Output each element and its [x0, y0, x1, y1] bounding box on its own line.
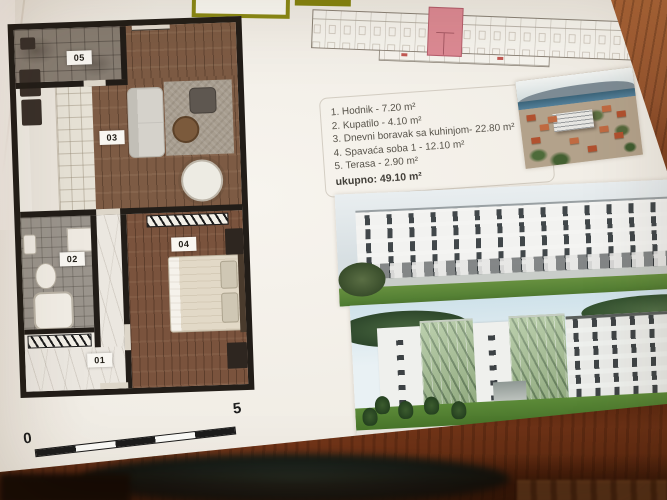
house-roof — [532, 137, 542, 144]
room-label-05: 05 — [67, 50, 92, 65]
bathtub — [33, 291, 74, 330]
apartment-floor-plan: 05 03 02 04 01 — [8, 16, 255, 398]
scale-label-start: 0 — [22, 430, 32, 448]
tree — [362, 408, 378, 427]
wardrobe-hatch — [27, 333, 91, 348]
tree — [398, 400, 414, 419]
dark-fabric-shadow — [80, 454, 510, 500]
kitchen-sink — [20, 37, 35, 50]
room-label-02: 02 — [60, 252, 85, 267]
scale-label-end: 5 — [232, 400, 242, 418]
house-roof — [548, 115, 558, 122]
dark-corner — [0, 474, 130, 500]
house-roof — [539, 124, 549, 131]
tree — [424, 396, 440, 415]
red-mark — [401, 53, 407, 56]
house-roof — [587, 145, 597, 152]
room-label-03: 03 — [99, 130, 124, 145]
building-wing — [565, 310, 667, 398]
pillow — [221, 292, 239, 323]
house-roof — [616, 111, 626, 118]
entrance-door — [100, 382, 128, 389]
neighborhood-aerial-photo — [515, 67, 643, 169]
building-rendering-front — [335, 179, 667, 306]
washing-machine — [67, 227, 94, 252]
fridge — [21, 99, 42, 126]
house-roof — [599, 125, 609, 132]
house-roof — [570, 138, 580, 145]
building-outline — [312, 10, 633, 60]
toilet — [35, 263, 57, 290]
nightstand — [225, 228, 244, 255]
house-roof — [601, 105, 611, 112]
armchair — [189, 87, 217, 114]
pillow — [220, 260, 238, 289]
nightstand — [227, 342, 248, 369]
window-column — [396, 334, 407, 405]
kitchen-floor — [56, 80, 97, 212]
tree — [450, 400, 466, 419]
highlighted-unit — [427, 7, 463, 56]
floor-strip — [517, 480, 667, 500]
bathroom-sink — [23, 234, 37, 254]
building-level-plan — [309, 0, 643, 78]
room-label-04: 04 — [171, 237, 196, 252]
room-label-01: 01 — [87, 353, 112, 368]
door-opening — [96, 208, 120, 215]
terrace-window — [84, 80, 106, 87]
bedroom-door — [124, 324, 131, 350]
house-roof — [614, 132, 624, 139]
house-roof — [526, 114, 536, 121]
red-mark — [497, 57, 503, 60]
photo-of-brochure: 05 03 02 04 01 1. Hodnik - 7.20 m² 2. Ku… — [0, 0, 667, 500]
sofa — [127, 87, 165, 158]
